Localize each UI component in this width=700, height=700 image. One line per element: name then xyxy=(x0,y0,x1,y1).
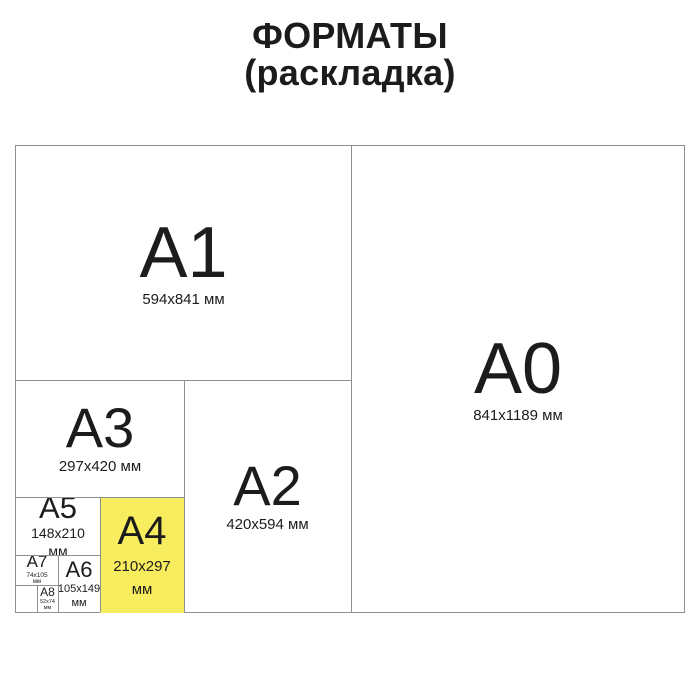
format-a2-label: A2 xyxy=(233,459,302,514)
format-a8-region: A8 52x74 мм xyxy=(37,585,58,613)
format-a0-region: A0 841x1189 мм xyxy=(351,146,685,613)
format-a2-dims: 420x594 мм xyxy=(226,517,308,534)
format-a1-region: A1 594x841 мм xyxy=(16,146,351,380)
formats-layout-sheet: A1 594x841 мм A0 841x1189 мм A3 297x420 … xyxy=(15,145,685,613)
format-a5-label: A5 xyxy=(39,497,77,523)
divider-a6-left xyxy=(58,555,59,612)
format-a4-unit: мм xyxy=(132,582,153,599)
divider-a4-left xyxy=(100,497,101,612)
title-line-1: ФОРМАТЫ xyxy=(0,17,700,54)
page-title: ФОРМАТЫ (раскладка) xyxy=(0,17,700,91)
divider-a2-left xyxy=(184,380,185,612)
format-a2-region: A2 420x594 мм xyxy=(184,380,351,613)
format-a5-dims: 148x210 xyxy=(31,526,85,541)
format-a4-dims: 210x297 xyxy=(113,559,171,576)
format-a8-label: A8 xyxy=(40,587,55,599)
format-a4-label: A4 xyxy=(118,512,167,551)
format-a3-dims: 297x420 мм xyxy=(59,459,141,476)
format-a3-region: A3 297x420 мм xyxy=(16,380,184,497)
format-a0-dims: 841x1189 мм xyxy=(473,408,563,425)
divider-a8-left xyxy=(37,585,38,612)
format-a4-region-highlighted: A4 210x297 мм xyxy=(100,497,184,613)
format-a6-region: A6 105x149 мм xyxy=(58,555,100,613)
format-a6-dims: 105x149 xyxy=(58,583,100,595)
format-a7-label: A7 xyxy=(27,555,48,571)
format-a1-dims: 594x841 мм xyxy=(142,292,224,309)
format-a5-unit: мм xyxy=(48,544,67,555)
format-a5-region: A5 148x210 мм xyxy=(16,497,100,555)
title-line-2: (раскладка) xyxy=(0,54,700,91)
format-a7-region: A7 74x105 мм xyxy=(16,555,58,585)
divider-a0-left xyxy=(351,146,352,612)
paper-formats-diagram-page: ФОРМАТЫ (раскладка) A1 594x841 мм A0 841… xyxy=(0,0,700,700)
format-a8-unit: мм xyxy=(44,605,52,611)
empty-corner-cell xyxy=(16,585,37,613)
format-a0-label: A0 xyxy=(474,334,562,405)
format-a6-unit: мм xyxy=(71,597,86,609)
format-a6-label: A6 xyxy=(66,559,93,581)
format-a7-dims: 74x105 xyxy=(26,572,47,579)
format-a3-label: A3 xyxy=(66,401,135,456)
format-a1-label: A1 xyxy=(139,218,227,289)
